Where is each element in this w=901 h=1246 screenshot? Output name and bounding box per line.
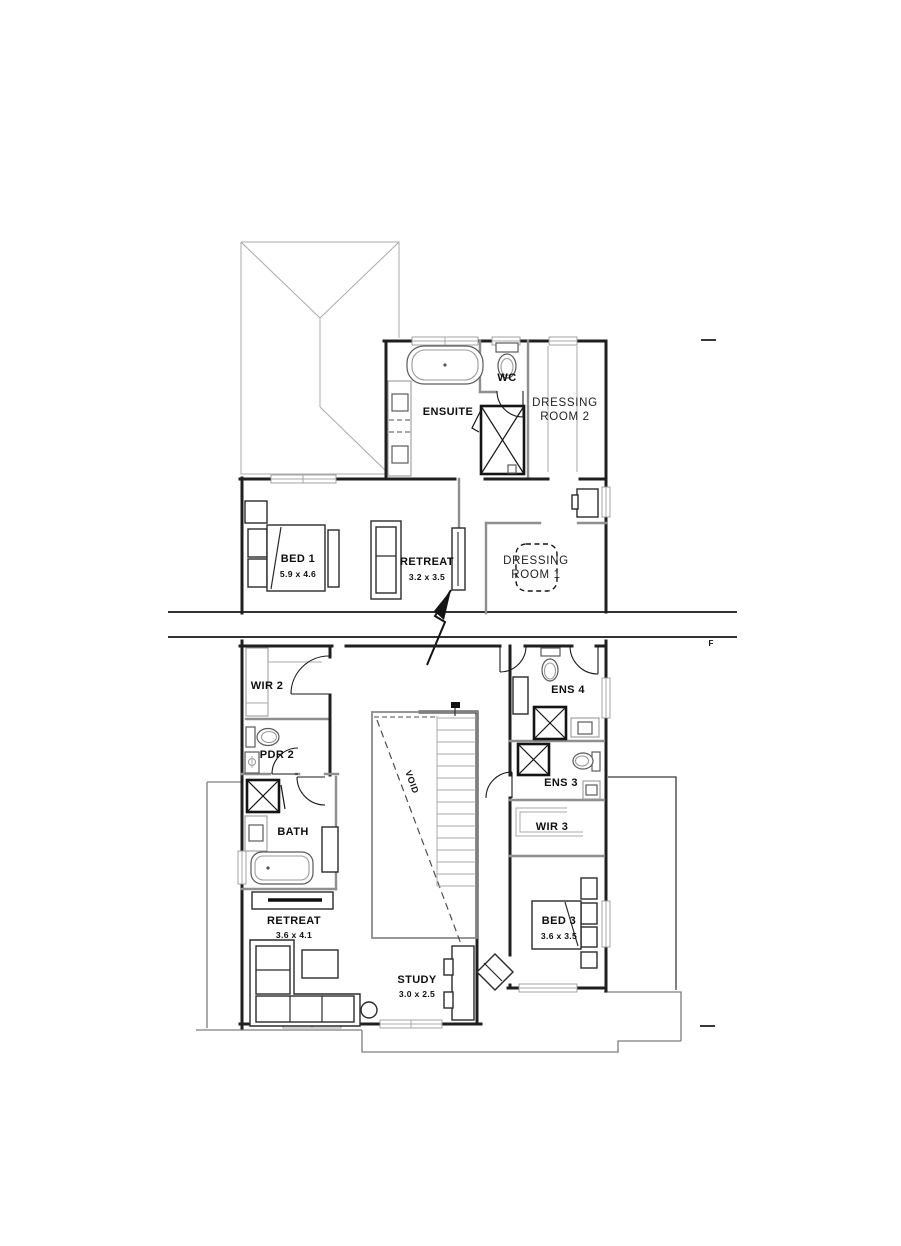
window bbox=[412, 337, 478, 345]
room-label-dressing1-line1: DRESSING bbox=[503, 555, 569, 567]
hip-roof-outline bbox=[241, 242, 399, 474]
toilet bbox=[573, 752, 600, 771]
break-marker-label: F bbox=[709, 639, 714, 648]
window bbox=[602, 678, 610, 718]
room-dims-bed3: 3.6 x 3.5 bbox=[541, 931, 577, 941]
cabinet bbox=[577, 489, 598, 517]
bedside-table bbox=[581, 878, 597, 899]
pillow bbox=[248, 529, 267, 557]
basin bbox=[586, 785, 597, 795]
room-label-retreat-lower: RETREAT bbox=[267, 915, 321, 927]
dressing-room-1-fittings bbox=[516, 544, 557, 591]
coffee-table bbox=[302, 950, 338, 978]
basin bbox=[578, 722, 592, 734]
room-label-bed1: BED 1 bbox=[281, 553, 315, 565]
dressing-room-2-fittings bbox=[548, 346, 598, 517]
room-label-bed3: BED 3 bbox=[542, 915, 576, 927]
room-label-dressing2-line2: ROOM 2 bbox=[540, 411, 590, 423]
shower bbox=[534, 707, 566, 739]
bathtub bbox=[251, 852, 313, 884]
room-dims-retreat-lower: 3.6 x 4.1 bbox=[276, 930, 312, 940]
toilet bbox=[246, 727, 279, 747]
window bbox=[602, 901, 610, 947]
window bbox=[519, 984, 577, 992]
window bbox=[238, 851, 246, 884]
pillow bbox=[248, 559, 267, 587]
room-label-pdr2: PDR 2 bbox=[260, 749, 294, 761]
room-label-wir2: WIR 2 bbox=[251, 680, 284, 692]
stairs bbox=[437, 716, 476, 886]
desk bbox=[452, 946, 474, 1020]
ens3-fixtures bbox=[518, 744, 600, 799]
room-label-dressing2-line1: DRESSING bbox=[532, 397, 598, 409]
room-dims-bed1: 5.9 x 4.6 bbox=[280, 569, 316, 579]
retreat-lower-furniture bbox=[250, 892, 377, 1026]
window bbox=[549, 337, 577, 345]
room-label-study: STUDY bbox=[397, 974, 437, 986]
window bbox=[271, 475, 336, 483]
pillow bbox=[581, 927, 597, 947]
desk-chair bbox=[444, 992, 453, 1008]
room-label-bath: BATH bbox=[277, 826, 308, 838]
room-dims-study: 3.0 x 2.5 bbox=[399, 989, 435, 999]
shower bbox=[518, 744, 549, 775]
basin bbox=[392, 394, 408, 411]
side-table bbox=[361, 1002, 377, 1018]
bedside-table bbox=[581, 952, 597, 968]
room-label-wc: WC bbox=[497, 372, 516, 384]
room-label-wir3: WIR 3 bbox=[536, 821, 569, 833]
floor-plan-drawing: ENSUITE WC DRESSING ROOM 2 BED 1 5.9 x 4… bbox=[0, 0, 901, 1246]
linen-cabinet bbox=[322, 827, 338, 872]
toilet bbox=[541, 648, 560, 681]
pillow bbox=[581, 903, 597, 924]
armchair bbox=[477, 954, 513, 990]
room-label-ens4: ENS 4 bbox=[551, 684, 585, 696]
shower bbox=[247, 780, 285, 812]
floor-plan-canvas: ENSUITE WC DRESSING ROOM 2 BED 1 5.9 x 4… bbox=[0, 0, 901, 1246]
break-wedge bbox=[434, 590, 451, 620]
cabinet bbox=[513, 677, 528, 714]
bed-end-bench bbox=[328, 530, 339, 587]
basin bbox=[392, 446, 408, 463]
door-swing bbox=[570, 646, 598, 674]
door-swing bbox=[297, 777, 325, 805]
void-label: VOID bbox=[403, 769, 421, 795]
room-dims-retreat-upper: 3.2 x 3.5 bbox=[409, 572, 445, 582]
desk-chair bbox=[444, 959, 453, 975]
room-label-ensuite: ENSUITE bbox=[423, 406, 473, 418]
ottoman bbox=[516, 544, 557, 591]
bedside-table bbox=[245, 501, 267, 523]
room-label-retreat-upper: RETREAT bbox=[400, 556, 454, 568]
newel-post bbox=[451, 702, 460, 708]
stair-void bbox=[372, 702, 477, 944]
room-label-dressing1-line2: ROOM 1 bbox=[511, 569, 561, 581]
window bbox=[380, 1020, 442, 1028]
window bbox=[602, 487, 610, 517]
door-swing bbox=[486, 772, 512, 798]
basin bbox=[249, 825, 263, 841]
room-label-ens3: ENS 3 bbox=[544, 777, 578, 789]
door-swing bbox=[500, 646, 526, 672]
